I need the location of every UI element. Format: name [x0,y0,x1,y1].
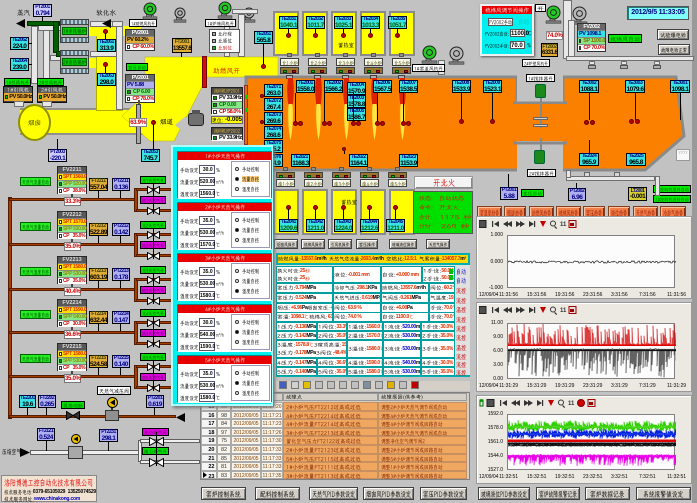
svg-text:11: 11 [568,401,575,407]
svg-text:11: 11 [560,222,567,228]
svg-text:11: 11 [560,308,567,314]
